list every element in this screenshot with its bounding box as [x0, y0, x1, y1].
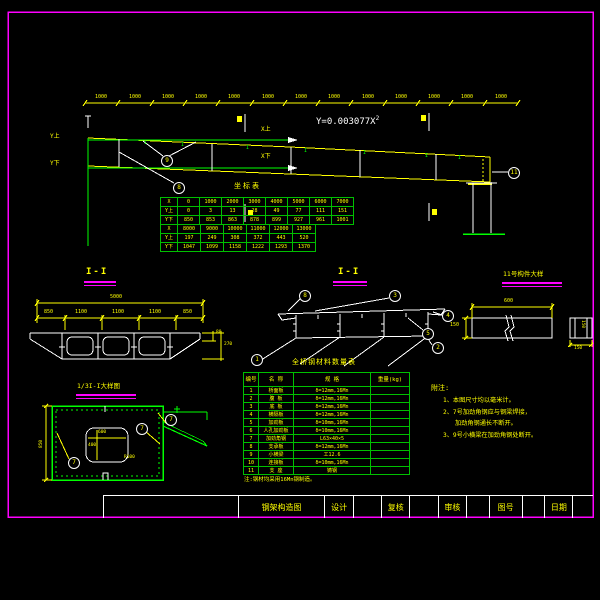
section-a-outline [30, 333, 200, 359]
drawing-canvas[interactable]: 1000 1000 1000 1000 1000 1000 1000 1000 … [0, 0, 600, 600]
note-item: 3、9号小横梁在加劲角钢处断开。 [443, 433, 537, 439]
span-dim-label: 1000 [195, 95, 207, 100]
axis-label-x-top: X上 [261, 127, 271, 133]
section-b-outline [258, 298, 445, 366]
table-row: 11支 座铸钢 [244, 467, 410, 475]
detail11-outline [472, 315, 592, 341]
detail11-title: 11号构件大样 [503, 271, 543, 278]
row-header: X [161, 198, 178, 207]
axis-label-y-bottom: Y下 [50, 161, 60, 167]
dim-label: R100 [124, 456, 135, 461]
span-dim-label: 1000 [95, 95, 107, 100]
callout-7: 7 [165, 414, 177, 426]
table-row: 7加劲角钢L63×40×5 [244, 435, 410, 443]
elevation-dimension-line [83, 100, 520, 106]
row-header: Y下 [161, 243, 178, 252]
span-dim-label: 1000 [428, 95, 440, 100]
section-marker-i: I [425, 154, 428, 159]
dim-label: 850 [183, 310, 192, 315]
section-marker-i: I [181, 143, 184, 148]
span-dim-label: 1000 [228, 95, 240, 100]
row-header: X [161, 225, 178, 234]
section-marker-i: I [458, 156, 461, 161]
date-value-cell [572, 496, 593, 518]
review-value-cell [466, 496, 488, 518]
callout-8: 8 [173, 182, 185, 194]
table-row: 4横隔板δ=12mm,16Mn [244, 411, 410, 419]
table-row: Y下 1047 1099 1158 1222 1293 1370 [161, 243, 316, 252]
callout-2: 2 [432, 342, 444, 354]
callout-7: 7 [68, 457, 80, 469]
table-row: Y上 197 249 308 372 443 520 [161, 234, 316, 243]
section-marker-i: I [363, 151, 366, 156]
span-dim-label: 1000 [495, 95, 507, 100]
row-header: Y上 [161, 207, 178, 216]
callout-3: 3 [389, 290, 401, 302]
axis-label-x-bottom: X下 [261, 154, 271, 160]
row-header: Y上 [161, 234, 178, 243]
detail11-dimensions [462, 303, 593, 347]
callout-4: 4 [442, 310, 454, 322]
coord-table-title: 坐标表 [234, 183, 261, 190]
note-item: 1、本图尺寸均以毫米计。 [443, 398, 515, 404]
table-row: Y上 0 3 13 28 49 77 111 151 [161, 207, 354, 216]
span-dim-label: 1000 [461, 95, 473, 100]
section-a-underline [84, 282, 116, 286]
span-dim-label: 1000 [328, 95, 340, 100]
span-dim-label: 1000 [162, 95, 174, 100]
curve-formula: Y=0.003077X2 [316, 116, 379, 127]
dim-label: 150 [450, 323, 459, 328]
drawing-number-value-cell [522, 496, 544, 518]
dim-label: 850 [40, 440, 45, 448]
notes-title: 附注: [431, 385, 449, 392]
table-row: X 0 1000 2000 3000 4000 5000 6000 7000 [161, 198, 354, 207]
dim-label: 150 [580, 320, 585, 328]
note-item: 加劲角钢通长不断开。 [455, 421, 517, 427]
check-value-cell [409, 496, 437, 518]
elevation-axis-arrows [288, 137, 298, 171]
dim-label: 270 [224, 343, 232, 348]
table-row: X 8000 9000 10000 11000 12000 13000 [161, 225, 316, 234]
callout-1: 1 [251, 354, 263, 366]
axis-label-y-top: Y上 [50, 134, 60, 140]
coordinate-table-block2: X 8000 9000 10000 11000 12000 13000 Y上 1… [160, 224, 316, 252]
drawing-number-label: 图号 [489, 496, 522, 518]
review-label: 审核 [438, 496, 466, 518]
section-marker-i: I [144, 141, 147, 146]
table-row: 10连接板δ=10mm,16Mn [244, 459, 410, 467]
span-dim-label: 1000 [362, 95, 374, 100]
check-label: 复核 [381, 496, 409, 518]
dim-label: 400 [88, 444, 96, 449]
table-header-row: 编号 名 称 规 格 重量(kg) [244, 373, 410, 387]
material-table-title: 全桥钢材料数量表 [292, 359, 356, 366]
callout-5: 5 [422, 328, 434, 340]
table-row: 2腹 板δ=12mm,16Mn [244, 395, 410, 403]
dim-label: 80 [216, 331, 221, 336]
dim-label: 1100 [75, 310, 87, 315]
dim-label: 150 [574, 347, 582, 352]
detail11-underline [502, 283, 562, 287]
table-row: 1桥面板δ=12mm,16Mn [244, 387, 410, 395]
dim-label: 850 [44, 310, 53, 315]
table-row: 8支承板δ=12mm,16Mn [244, 443, 410, 451]
coordinate-table-block1: X 0 1000 2000 3000 4000 5000 6000 7000 Y… [160, 197, 354, 225]
dim-label: 1100 [149, 310, 161, 315]
table-row: 9小横梁工12.6 [244, 451, 410, 459]
span-dim-label: 1000 [262, 95, 274, 100]
callout-8: 8 [299, 290, 311, 302]
design-value-cell [353, 496, 381, 518]
callout-11: 11 [508, 167, 520, 179]
span-dim-label: 1000 [129, 95, 141, 100]
span-dim-label: 1000 [395, 95, 407, 100]
table-row: 3底 板δ=12mm,16Mn [244, 403, 410, 411]
section-a-total-dim: 5000 [110, 295, 122, 300]
note-item: 2、7号加劲角钢应与钢梁焊接， [443, 410, 531, 416]
span-dim-label: 1000 [295, 95, 307, 100]
section-a-title: I-I [86, 268, 108, 277]
detail-third-underline [76, 395, 136, 399]
dim-label: 600 [504, 299, 513, 304]
detail-third-title: 1/3I-I大样图 [77, 383, 120, 390]
design-label: 设计 [324, 496, 352, 518]
material-table-note: 注:钢材均采用16Mn钢制造。 [244, 478, 316, 484]
detail-third-plate [52, 406, 207, 480]
section-marker-i: I [304, 149, 307, 154]
title-block: 钢架构造图 设计 复核 审核 图号 日期 [103, 495, 593, 518]
callout-9: 9 [161, 155, 173, 167]
section-b-underline [333, 282, 367, 286]
formula-exponent: 2 [376, 115, 380, 122]
detail-third-dimensions [42, 404, 166, 482]
material-table: 编号 名 称 规 格 重量(kg) 1桥面板δ=12mm,16Mn 2腹 板δ=… [243, 372, 410, 475]
date-label: 日期 [544, 496, 572, 518]
section-b-title: I-I [338, 268, 360, 277]
callout-7: 7 [136, 423, 148, 435]
section-a-dimensions [35, 299, 224, 361]
title-block-empty-cell [103, 496, 238, 518]
dim-label: 600 [98, 431, 106, 436]
table-row: 5加劲板δ=10mm,16Mn [244, 419, 410, 427]
section-marker-i: I [246, 146, 249, 151]
drawing-title: 钢架构造图 [238, 496, 325, 518]
dim-label: 1100 [112, 310, 124, 315]
formula-base: Y=0.003077X [316, 117, 376, 127]
table-row: 6人孔加劲板δ=10mm,16Mn [244, 427, 410, 435]
